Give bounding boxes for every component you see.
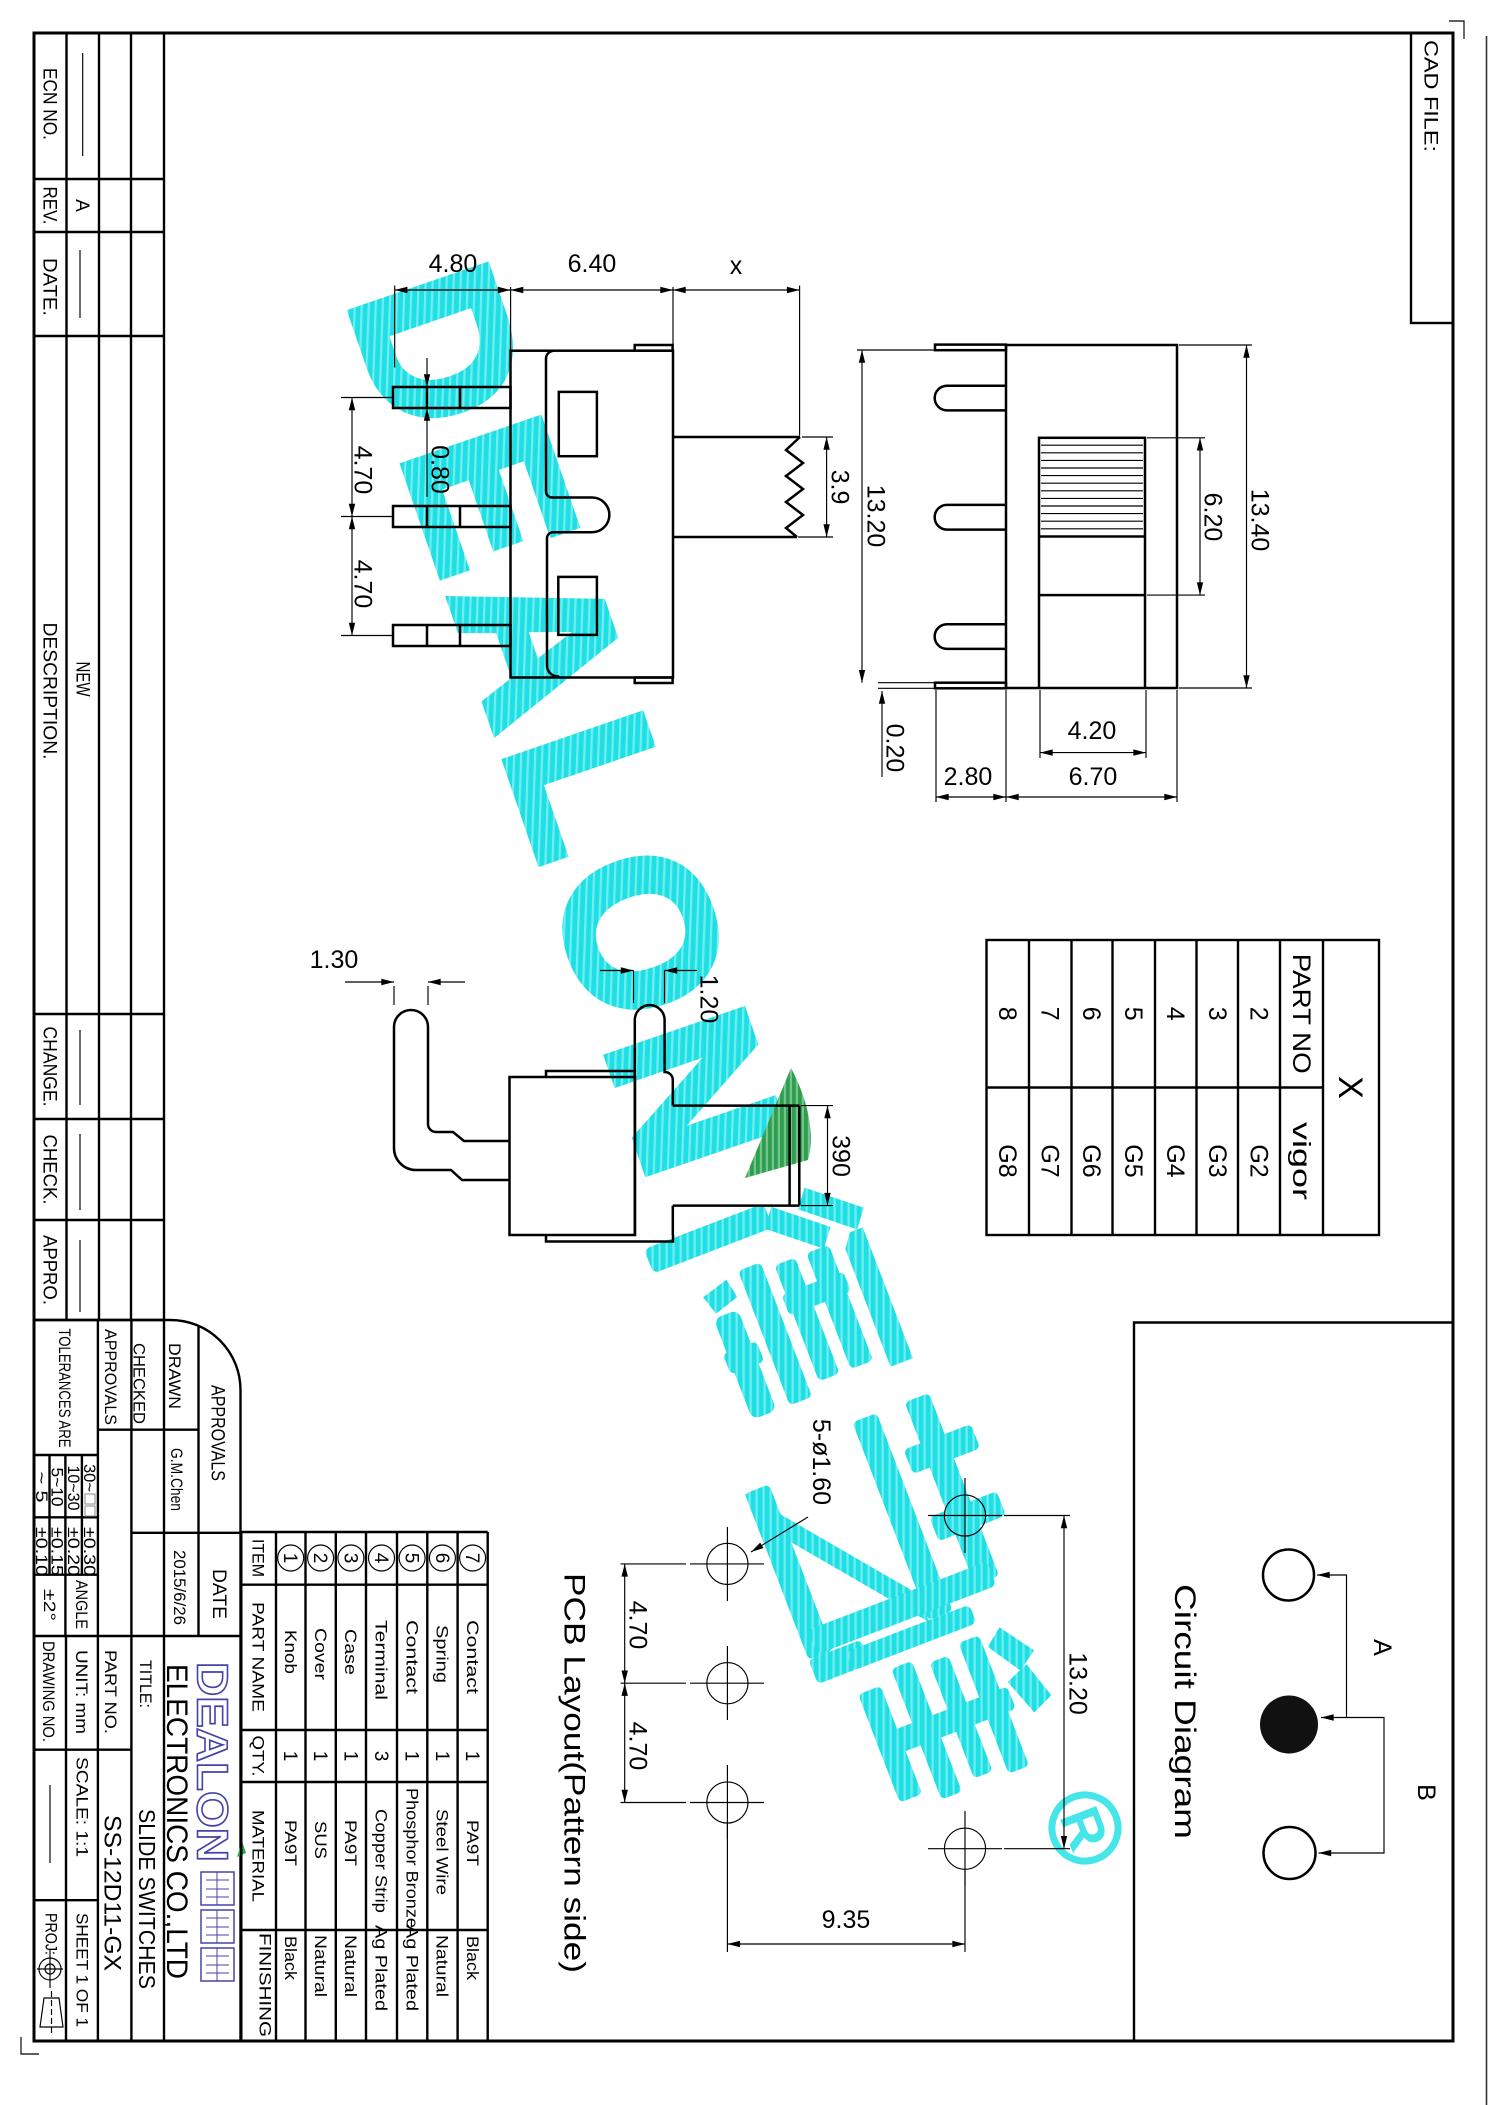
svg-text:0.80: 0.80 xyxy=(425,445,453,494)
svg-text:6.70: 6.70 xyxy=(1069,763,1118,791)
svg-text:REV.: REV. xyxy=(38,187,59,225)
svg-text:±2°: ±2° xyxy=(40,1589,58,1621)
svg-text:6: 6 xyxy=(1077,1007,1105,1021)
svg-text:±0.15: ±0.15 xyxy=(48,1527,66,1576)
svg-text:TITLE:: TITLE: xyxy=(136,1660,154,1708)
svg-text:5: 5 xyxy=(1119,1007,1147,1021)
svg-text:Natural: Natural xyxy=(433,1935,451,1997)
svg-text:6.20: 6.20 xyxy=(1198,493,1226,542)
svg-text:Ag Plated: Ag Plated xyxy=(372,1925,390,2011)
svg-text:FINISHING: FINISHING xyxy=(256,1933,274,2037)
svg-text:Contact: Contact xyxy=(463,1620,481,1695)
svg-text:10~30: 10~30 xyxy=(64,1466,82,1511)
svg-text:G4: G4 xyxy=(1161,1144,1189,1177)
svg-text:NEW: NEW xyxy=(71,662,92,697)
svg-text:X: X xyxy=(1331,1076,1369,1099)
svg-text:G3: G3 xyxy=(1203,1144,1231,1177)
svg-text:G.M.Chen: G.M.Chen xyxy=(167,1448,185,1511)
svg-text:G6: G6 xyxy=(1077,1144,1105,1177)
svg-text:3.9: 3.9 xyxy=(825,470,853,505)
svg-text:Contact: Contact xyxy=(402,1620,420,1695)
svg-text:Knob: Knob xyxy=(281,1630,299,1674)
svg-text:DATE: DATE xyxy=(208,1569,229,1619)
svg-text:±0.20: ±0.20 xyxy=(64,1527,82,1576)
svg-text:Natural: Natural xyxy=(341,1935,359,1997)
svg-text:2: 2 xyxy=(309,1553,330,1564)
svg-text:ITEM: ITEM xyxy=(249,1539,267,1577)
svg-text:DRAWN: DRAWN xyxy=(165,1343,183,1409)
svg-text:1: 1 xyxy=(461,1751,482,1762)
svg-text:4.20: 4.20 xyxy=(1068,717,1117,745)
svg-text:0.20: 0.20 xyxy=(880,724,908,773)
svg-text:7: 7 xyxy=(461,1553,482,1564)
svg-text:4.70: 4.70 xyxy=(348,446,376,495)
svg-text:8: 8 xyxy=(993,1007,1021,1021)
svg-text:Terminal: Terminal xyxy=(372,1620,390,1700)
svg-text:13.20: 13.20 xyxy=(1063,1652,1091,1715)
svg-text:Steel Wire: Steel Wire xyxy=(433,1809,451,1895)
svg-text:QTY.: QTY. xyxy=(249,1736,267,1777)
svg-text:DATE.: DATE. xyxy=(38,258,59,316)
svg-text:CHECKED: CHECKED xyxy=(130,1343,148,1424)
svg-text:7: 7 xyxy=(1035,1007,1063,1021)
svg-text:SLIDE SWITCHES: SLIDE SWITCHES xyxy=(134,1809,160,1989)
svg-text:SUS: SUS xyxy=(311,1821,329,1859)
svg-text:2.80: 2.80 xyxy=(944,763,993,791)
svg-text:Case: Case xyxy=(341,1629,359,1675)
svg-text:CHANGE.: CHANGE. xyxy=(38,1027,59,1107)
svg-text:DRAWING NO.: DRAWING NO. xyxy=(39,1641,57,1742)
svg-text:G8: G8 xyxy=(993,1144,1021,1177)
svg-text:Black: Black xyxy=(281,1936,299,1981)
svg-text:3: 3 xyxy=(1203,1007,1231,1021)
svg-text:6: 6 xyxy=(431,1553,452,1564)
svg-text:1: 1 xyxy=(279,1553,300,1564)
svg-text:1: 1 xyxy=(400,1751,421,1762)
svg-text:TOLERANCES ARE: TOLERANCES ARE xyxy=(55,1329,73,1448)
svg-text:A: A xyxy=(71,199,92,212)
svg-text:A: A xyxy=(1368,1639,1396,1656)
svg-text:3: 3 xyxy=(339,1553,360,1564)
svg-text:4.70: 4.70 xyxy=(348,560,376,609)
svg-text:x: x xyxy=(730,252,743,280)
svg-text:CHECK.: CHECK. xyxy=(38,1135,59,1205)
svg-text:DEALON: DEALON xyxy=(188,1662,237,1862)
svg-text:Natural: Natural xyxy=(311,1935,329,1997)
svg-text:PA9T: PA9T xyxy=(463,1820,481,1866)
svg-text:SHEET 1 OF 1: SHEET 1 OF 1 xyxy=(73,1913,91,2027)
svg-text:Circuit Diagram: Circuit Diagram xyxy=(1168,1584,1201,1839)
svg-text:G5: G5 xyxy=(1119,1144,1147,1177)
svg-text:APPRO.: APPRO. xyxy=(38,1235,59,1305)
svg-text:6.40: 6.40 xyxy=(568,250,617,278)
svg-text:1: 1 xyxy=(431,1751,452,1762)
svg-text:1.30: 1.30 xyxy=(310,946,359,974)
svg-text:Spring: Spring xyxy=(433,1625,451,1683)
svg-text:B: B xyxy=(1412,1784,1440,1801)
svg-text:PROJ:: PROJ: xyxy=(42,1913,60,1955)
svg-text:13.40: 13.40 xyxy=(1245,489,1273,552)
svg-text:DESCRIPTION.: DESCRIPTION. xyxy=(38,623,59,760)
svg-text:ECN NO.: ECN NO. xyxy=(38,68,59,140)
svg-text:4.80: 4.80 xyxy=(429,250,478,278)
svg-text:PART NO: PART NO xyxy=(1287,954,1315,1074)
svg-text:1: 1 xyxy=(279,1751,300,1762)
svg-text:390: 390 xyxy=(826,1135,854,1177)
svg-text:vigor: vigor xyxy=(1287,1122,1315,1200)
svg-text:5-ø1.60: 5-ø1.60 xyxy=(807,1419,835,1505)
svg-text:PCB Layout(Pattern side): PCB Layout(Pattern side) xyxy=(558,1573,591,1973)
svg-text:UNIT: mm: UNIT: mm xyxy=(72,1650,90,1734)
svg-text:2: 2 xyxy=(1244,1007,1272,1021)
svg-text:MATERIAL: MATERIAL xyxy=(249,1810,267,1902)
svg-text:G7: G7 xyxy=(1035,1144,1063,1177)
svg-text:G2: G2 xyxy=(1244,1144,1272,1177)
svg-text:30~: 30~ xyxy=(80,1464,98,1492)
svg-text:5: 5 xyxy=(400,1553,421,1564)
svg-text:PART NAME: PART NAME xyxy=(249,1602,267,1712)
svg-text:Black: Black xyxy=(463,1936,481,1981)
svg-text:1: 1 xyxy=(339,1751,360,1762)
svg-text:5~10: 5~10 xyxy=(48,1468,66,1507)
svg-text:±0.10: ±0.10 xyxy=(32,1527,50,1576)
svg-text:1: 1 xyxy=(309,1751,330,1762)
svg-text:~ 5: ~ 5 xyxy=(32,1472,50,1503)
svg-text:APPROVALS: APPROVALS xyxy=(101,1329,119,1425)
svg-text:Phosphor Bronze: Phosphor Bronze xyxy=(402,1788,420,1928)
svg-text:±0.30: ±0.30 xyxy=(80,1527,98,1576)
svg-text:4.70: 4.70 xyxy=(623,1722,651,1771)
svg-text:SCALE: 1:1: SCALE: 1:1 xyxy=(73,1757,91,1857)
svg-text:PA9T: PA9T xyxy=(341,1820,359,1866)
svg-text:4: 4 xyxy=(1161,1007,1189,1021)
svg-text:ANGLE: ANGLE xyxy=(72,1580,90,1629)
svg-text:Cover: Cover xyxy=(311,1628,329,1681)
svg-text:APPROVALS: APPROVALS xyxy=(206,1385,227,1481)
svg-text:1.20: 1.20 xyxy=(694,975,722,1024)
svg-text:2015/6/26: 2015/6/26 xyxy=(170,1550,188,1625)
svg-text:4.70: 4.70 xyxy=(623,1601,651,1650)
svg-text:3: 3 xyxy=(370,1751,391,1762)
svg-text:Copper Strip: Copper Strip xyxy=(372,1809,390,1913)
svg-text:9.35: 9.35 xyxy=(822,1906,871,1934)
svg-text:SS-12D11-GX: SS-12D11-GX xyxy=(98,1815,125,1971)
svg-text:PA9T: PA9T xyxy=(281,1820,299,1866)
svg-text:Ag Plated: Ag Plated xyxy=(402,1925,420,2011)
svg-text:CAD FILE:: CAD FILE: xyxy=(1419,40,1440,152)
svg-text:PART NO.: PART NO. xyxy=(101,1650,119,1734)
svg-text:13.20: 13.20 xyxy=(861,485,889,548)
svg-text:4: 4 xyxy=(370,1553,391,1564)
